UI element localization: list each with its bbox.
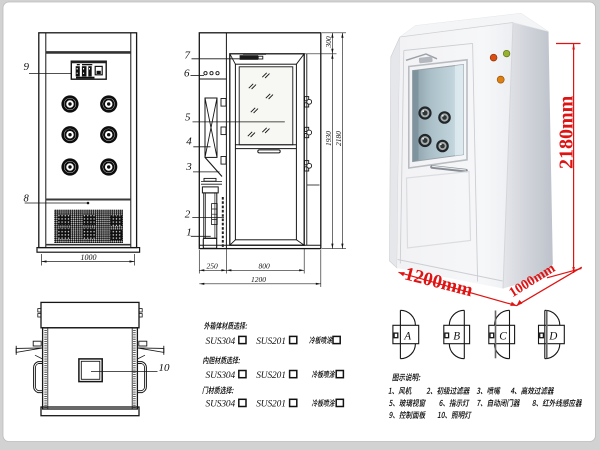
svg-text:SUS201: SUS201 [256, 371, 286, 381]
svg-text:1000: 1000 [81, 253, 97, 262]
svg-text:300: 300 [324, 36, 333, 49]
svg-text:6: 6 [184, 67, 190, 79]
svg-text:C: C [499, 330, 507, 342]
svg-text:SUS201: SUS201 [256, 337, 286, 347]
svg-text:2180: 2180 [334, 131, 343, 146]
svg-text:5: 5 [185, 112, 191, 124]
svg-text:A: A [403, 330, 411, 342]
svg-text:B: B [453, 330, 460, 342]
svg-text:7: 7 [185, 50, 191, 62]
svg-text:SUS304: SUS304 [206, 400, 236, 410]
svg-text:250: 250 [207, 262, 219, 271]
svg-text:1930: 1930 [324, 131, 333, 146]
svg-text:1200: 1200 [251, 275, 266, 284]
svg-text:4: 4 [186, 135, 192, 147]
svg-text:SUS304: SUS304 [206, 371, 236, 381]
svg-text:3: 3 [185, 161, 192, 173]
svg-text:D: D [548, 330, 557, 342]
svg-text:10: 10 [159, 362, 171, 374]
svg-text:9: 9 [24, 61, 30, 73]
svg-text:SUS201: SUS201 [256, 400, 286, 410]
svg-text:1: 1 [186, 227, 192, 239]
svg-text:8: 8 [24, 194, 30, 205]
svg-text:800: 800 [259, 262, 271, 271]
svg-text:SUS304: SUS304 [206, 337, 236, 347]
svg-text:2: 2 [185, 208, 191, 220]
svg-text:2180mm: 2180mm [556, 95, 578, 169]
